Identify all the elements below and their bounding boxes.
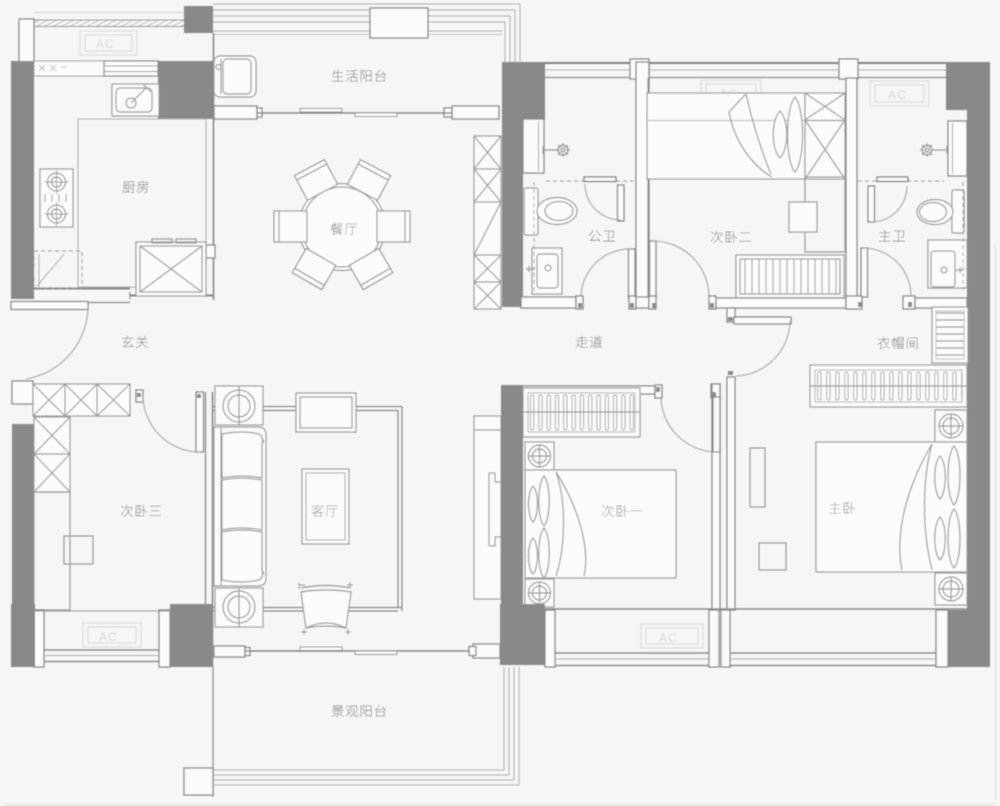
svg-text:AC: AC (96, 37, 115, 51)
svg-text:AC: AC (659, 631, 678, 645)
svg-text:AC: AC (888, 88, 907, 102)
svg-text:AC: AC (99, 630, 118, 644)
